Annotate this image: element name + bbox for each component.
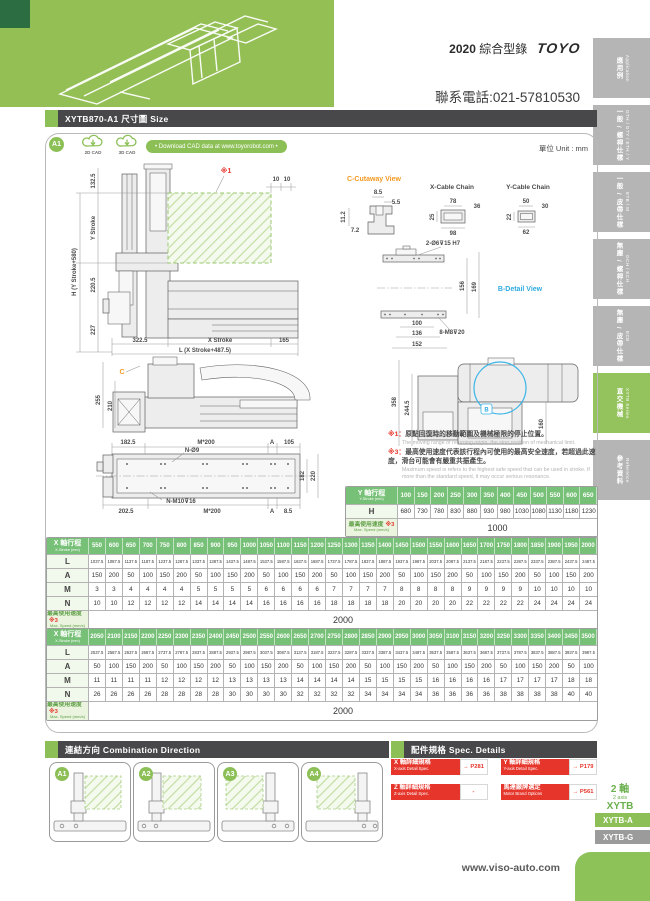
table-cell: 15: [411, 674, 428, 687]
spec-chip-y-axis-detail-spec[interactable]: Y 軸詳細規格Y-axis Detail Spec.→ P179: [501, 759, 598, 775]
table-cell: 3237.5: [326, 646, 343, 659]
table-cell: 10: [563, 583, 580, 596]
table-cell: 2337.5: [529, 555, 546, 568]
corner-accent: [575, 852, 650, 901]
stroke-value-header: 1350: [360, 538, 377, 554]
stroke-value-header: 2100: [106, 629, 123, 645]
stroke-value-header: 2350: [191, 629, 208, 645]
table-cell: 16: [478, 674, 495, 687]
table-cell: 5: [208, 583, 225, 596]
stroke-value-header: 1600: [445, 538, 462, 554]
table-cell: 8: [394, 583, 411, 596]
stroke-value-header: 2200: [140, 629, 157, 645]
stroke-value-header: 3500: [580, 629, 597, 645]
row-label: N: [47, 688, 89, 701]
table-cell: 26: [140, 688, 157, 701]
sidebar-tab-reference[interactable]: 參考資料Reference: [593, 440, 650, 500]
table-cell: 16: [258, 597, 275, 610]
table-cell: 2537.5: [89, 646, 106, 659]
max-speed-value: 2000: [89, 611, 597, 629]
stroke-value-header: 1550: [428, 538, 445, 554]
stroke-value-header: 2150: [123, 629, 140, 645]
table-cell: 3137.5: [292, 646, 309, 659]
stroke-value-header: 650: [580, 487, 597, 504]
stroke-value-header: 800: [174, 538, 191, 554]
table-cell: 36: [445, 688, 462, 701]
table-cell: 5: [191, 583, 208, 596]
table-cell: 50: [191, 569, 208, 582]
stroke-value-header: 1800: [512, 538, 529, 554]
table-cell: 2987.5: [241, 646, 258, 659]
cad-3d-download[interactable]: 3D CAD: [112, 134, 142, 155]
table-cell: 200: [377, 569, 394, 582]
table-cell: 8: [428, 583, 445, 596]
table-cell: 10: [89, 597, 106, 610]
toyo-logo: TOYO: [535, 40, 581, 56]
cloud-download-icon: [114, 134, 140, 150]
stroke-value-header: 1500: [411, 538, 428, 554]
table-cell: 980: [498, 505, 515, 518]
table-cell: 3337.5: [360, 646, 377, 659]
contact-phone: 聯系電話:021-57810530: [435, 86, 580, 106]
table-cell: 20: [428, 597, 445, 610]
table-cell: 14: [191, 597, 208, 610]
table-cell: 3287.5: [343, 646, 360, 659]
series-tab-xytb-g[interactable]: XYTB-G: [595, 830, 650, 844]
table-cell: 200: [241, 569, 258, 582]
table-cell: 16: [275, 597, 292, 610]
stroke-value-header: 2600: [275, 629, 292, 645]
stroke-value-header: 600: [564, 487, 581, 504]
table-cell: 2587.5: [106, 646, 123, 659]
note1-ref: ※1：: [388, 431, 405, 438]
stroke-value-header: 1750: [495, 538, 512, 554]
table-cell: 200: [140, 660, 157, 673]
table-cell: 3887.5: [546, 646, 563, 659]
table-cell: 17: [529, 674, 546, 687]
table-cell: 100: [174, 660, 191, 673]
table-cell: 17: [546, 674, 563, 687]
series-name: XYTB: [595, 801, 645, 812]
table-cell: 150: [258, 660, 275, 673]
stroke-value-header: 3450: [563, 629, 580, 645]
table-cell: 4: [174, 583, 191, 596]
table-cell: 22: [512, 597, 529, 610]
stroke-value-header: 550: [89, 538, 106, 554]
table-cell: 1230: [580, 505, 597, 518]
stroke-value-header: 2250: [157, 629, 174, 645]
table-cell: 4: [140, 583, 157, 596]
stroke-value-header: 500: [531, 487, 548, 504]
table-cell: 3787.5: [512, 646, 529, 659]
table-cell: 1887.5: [377, 555, 394, 568]
table-cell: 1387.5: [208, 555, 225, 568]
chip-label-en: Y-axis Detail Spec.: [504, 767, 567, 771]
combination-badge: A4: [307, 767, 321, 781]
table-cell: 40: [580, 688, 597, 701]
table-cell: 16: [428, 674, 445, 687]
table-cell: 150: [123, 660, 140, 673]
variant-badge: A1: [49, 137, 64, 152]
table-cell: 150: [428, 569, 445, 582]
series-label: 2 軸 2 axis XYTB: [595, 784, 645, 812]
stroke-value-header: 750: [157, 538, 174, 554]
table-cell: 830: [448, 505, 465, 518]
stroke-value-header: 100: [398, 487, 415, 504]
table-cell: 3487.5: [411, 646, 428, 659]
table-cell: 7: [377, 583, 394, 596]
table-cell: 150: [224, 569, 241, 582]
table-cell: 36: [428, 688, 445, 701]
stroke-value-header: 2900: [377, 629, 394, 645]
stroke-header-label: X 軸行程X-Stroke (mm): [47, 629, 89, 645]
table-cell: 150: [563, 569, 580, 582]
table-cell: 2037.5: [428, 555, 445, 568]
stroke-value-header: 950: [224, 538, 241, 554]
table-cell: 2687.5: [140, 646, 157, 659]
stroke-value-header: 1100: [275, 538, 292, 554]
stroke-value-header: 1400: [377, 538, 394, 554]
cad-2d-label: 2D CAD: [78, 150, 108, 155]
table-cell: 9: [478, 583, 495, 596]
chip-page-ref: → P179: [569, 759, 597, 775]
stroke-value-header: 1300: [343, 538, 360, 554]
table-cell: 150: [326, 660, 343, 673]
stroke-value-header: 350: [481, 487, 498, 504]
table-cell: 34: [360, 688, 377, 701]
table-cell: 1287.5: [174, 555, 191, 568]
stroke-value-header: 2450: [224, 629, 241, 645]
table-cell: 2887.5: [208, 646, 225, 659]
table-cell: 12: [157, 597, 174, 610]
table-cell: 28: [174, 688, 191, 701]
stroke-value-header: 1850: [529, 538, 546, 554]
sidebar-tab-label-en: ECB: [625, 331, 630, 342]
stroke-value-header: 3350: [529, 629, 546, 645]
table-cell: 7: [343, 583, 360, 596]
stroke-value-header: 700: [140, 538, 157, 554]
table-cell: 50: [462, 569, 479, 582]
table-cell: 2187.5: [478, 555, 495, 568]
table-cell: 13: [241, 674, 258, 687]
table-cell: 1237.5: [157, 555, 174, 568]
title-green-square: [391, 741, 404, 758]
table-cell: 12: [174, 674, 191, 687]
table-cell: 50: [360, 660, 377, 673]
sidebar-tab-etb-m[interactable]: 一般 / 皮帶仕樣ETB / M: [593, 172, 650, 232]
table-cell: 36: [462, 688, 479, 701]
catalog-year: 2020: [449, 42, 476, 56]
table-cell: 24: [529, 597, 546, 610]
table-cell: 1587.5: [275, 555, 292, 568]
table-cell: 34: [377, 688, 394, 701]
table-cell: 3437.5: [394, 646, 411, 659]
sidebar-tab-gth-gty-eth-y[interactable]: 一般 / 螺桿仕樣GTH / GTY / ETH / Y: [593, 105, 650, 165]
max-speed-label: 最高使用速度※3Max. Speed (mm/s): [47, 702, 89, 720]
table-cell: 3087.5: [275, 646, 292, 659]
table-cell: 10: [580, 583, 597, 596]
stroke-value-header: 2500: [241, 629, 258, 645]
table-cell: 50: [394, 569, 411, 582]
table-cell: 28: [191, 688, 208, 701]
max-speed-value: 1000: [398, 519, 597, 536]
table-cell: 14: [208, 597, 225, 610]
stroke-value-header: 300: [464, 487, 481, 504]
table-cell: 1937.5: [394, 555, 411, 568]
table-cell: 6: [258, 583, 275, 596]
table-cell: 2637.5: [123, 646, 140, 659]
spec-chip-motor-brand-options[interactable]: 馬達廠牌選定Motor Brand Options→ P561: [501, 784, 598, 800]
table-cell: 3987.5: [580, 646, 597, 659]
sidebar-tab-label-en: Application: [625, 55, 630, 82]
stroke-value-header: 550: [547, 487, 564, 504]
sidebar-tab-label-en: GTH / GTY / ETH / Y: [625, 110, 630, 160]
table-cell: 100: [241, 660, 258, 673]
table-cell: 7: [326, 583, 343, 596]
table-cell: 3537.5: [428, 646, 445, 659]
table-cell: 50: [563, 660, 580, 673]
row-label: L: [47, 646, 89, 659]
table-cell: 2387.5: [546, 555, 563, 568]
table-cell: 100: [377, 660, 394, 673]
table-cell: 32: [343, 688, 360, 701]
stroke-value-header: 3100: [445, 629, 462, 645]
gantry-robot-sketch: [0, 0, 334, 107]
note3-text-en: Maximum speed is refers to the highest s…: [402, 467, 596, 480]
table-cell: 50: [89, 660, 106, 673]
sidebar-tab-label-en: XYTB Series: [625, 388, 630, 419]
table-cell: 150: [529, 660, 546, 673]
table-cell: 50: [224, 660, 241, 673]
table-cell: 26: [106, 688, 123, 701]
stroke-value-header: 1050: [258, 538, 275, 554]
row-label: L: [47, 555, 89, 568]
stroke-value-header: 3150: [462, 629, 479, 645]
table-cell: 13: [224, 674, 241, 687]
table-cell: 1487.5: [241, 555, 258, 568]
table-cell: 680: [398, 505, 415, 518]
stroke-value-header: 150: [415, 487, 432, 504]
table-cell: 30: [224, 688, 241, 701]
combination-title-en: Combination Direction: [103, 745, 200, 755]
stroke-value-header: 1900: [546, 538, 563, 554]
table-cell: 18: [377, 597, 394, 610]
table-cell: 16: [292, 597, 309, 610]
table-cell: 1987.5: [411, 555, 428, 568]
section-tab-sidebar: 應用例Application一般 / 螺桿仕樣GTH / GTY / ETH /…: [593, 38, 650, 500]
table-cell: 26: [89, 688, 106, 701]
table-cell: 14: [224, 597, 241, 610]
max-speed-label: 最高使用速度※3Max. Speed (mm/s): [346, 519, 398, 536]
table-cell: 150: [89, 569, 106, 582]
table-cell: 10: [546, 583, 563, 596]
table-cell: 7: [360, 583, 377, 596]
series-tab-xytb-a[interactable]: XYTB-A: [595, 813, 650, 827]
sidebar-tab-label-zh: 一般 / 皮帶仕樣: [613, 175, 623, 228]
table-cell: 36: [478, 688, 495, 701]
table-cell: 150: [462, 660, 479, 673]
table-cell: 4: [123, 583, 140, 596]
download-cad-link[interactable]: • Download CAD data at www.toyorobot.com…: [146, 140, 287, 153]
table-cell: 32: [326, 688, 343, 701]
table-cell: 200: [411, 660, 428, 673]
table-cell: 34: [394, 688, 411, 701]
table-cell: 32: [292, 688, 309, 701]
table-cell: 150: [292, 569, 309, 582]
combination-title-zh: 連結方向: [65, 745, 100, 755]
combination-card-a3: A3: [217, 762, 299, 842]
cad-3d-label: 3D CAD: [112, 150, 142, 155]
table-cell: 200: [478, 660, 495, 673]
table-cell: 1537.5: [258, 555, 275, 568]
max-speed-label: 最高使用速度※3Max. Speed (mm/s): [47, 611, 89, 629]
table-cell: 150: [191, 660, 208, 673]
spec-chip-x-axis-detail-spec[interactable]: X 軸詳細規格X-axis Detail Spec.→ P281: [391, 759, 488, 775]
table-cell: 200: [512, 569, 529, 582]
table-cell: 2837.5: [191, 646, 208, 659]
table-cell: 5: [224, 583, 241, 596]
table-cell: 12: [191, 674, 208, 687]
spec-title-zh: 配件規格: [411, 745, 446, 755]
stroke-value-header: 600: [106, 538, 123, 554]
combination-card-a4: A4: [301, 762, 383, 842]
table-cell: 32: [309, 688, 326, 701]
table-cell: 2487.5: [580, 555, 597, 568]
table-cell: 20: [411, 597, 428, 610]
stroke-value-header: 1950: [563, 538, 580, 554]
stroke-value-header: 850: [191, 538, 208, 554]
stroke-value-header: 900: [208, 538, 225, 554]
stroke-value-header: 3200: [478, 629, 495, 645]
sidebar-tab-xytb-series[interactable]: 直交機械XYTB Series: [593, 373, 650, 433]
table-cell: 200: [546, 660, 563, 673]
table-cell: 14: [309, 674, 326, 687]
table-cell: 9: [495, 583, 512, 596]
table-cell: 1837.5: [360, 555, 377, 568]
table-cell: 930: [481, 505, 498, 518]
stroke-value-header: 3050: [428, 629, 445, 645]
table-cell: 6: [275, 583, 292, 596]
stroke-value-header: 1150: [292, 538, 309, 554]
chip-page-ref: -: [460, 784, 488, 800]
stroke-value-header: 1450: [394, 538, 411, 554]
sidebar-tab-label-zh: 無塵 / 螺桿仕樣: [613, 242, 623, 295]
row-label: A: [47, 660, 89, 673]
table-cell: 100: [580, 660, 597, 673]
stroke-value-header: 1700: [478, 538, 495, 554]
sidebar-tab-label-zh: 無塵 / 皮帶仕樣: [613, 309, 623, 362]
table-cell: 200: [580, 569, 597, 582]
sidebar-tab-application[interactable]: 應用例Application: [593, 38, 650, 98]
table-cell: 30: [275, 688, 292, 701]
table-cell: 1637.5: [292, 555, 309, 568]
table-cell: 2737.5: [157, 646, 174, 659]
table-cell: 200: [106, 569, 123, 582]
cad-2d-download[interactable]: 2D CAD: [78, 134, 108, 155]
table-cell: 50: [157, 660, 174, 673]
table-cell: 5: [241, 583, 258, 596]
table-cell: 28: [157, 688, 174, 701]
table-cell: 6: [292, 583, 309, 596]
table-cell: 16: [445, 674, 462, 687]
table-cell: 11: [106, 674, 123, 687]
stroke-value-header: 2700: [309, 629, 326, 645]
table-cell: 18: [580, 674, 597, 687]
stroke-value-header: 1250: [326, 538, 343, 554]
stroke-value-header: 1200: [309, 538, 326, 554]
table-cell: 17: [495, 674, 512, 687]
sidebar-tab-label-en: Reference: [625, 458, 630, 483]
table-cell: 9: [512, 583, 529, 596]
table-cell: 14: [241, 597, 258, 610]
stroke-value-header: 2950: [394, 629, 411, 645]
table-cell: 3837.5: [529, 646, 546, 659]
row-label: M: [47, 583, 89, 596]
x-stroke-table-1: X 軸行程X-Stroke (mm)5506006507007508008509…: [46, 537, 598, 630]
table-cell: 1687.5: [309, 555, 326, 568]
spec-chip-z-axis-detail-spec[interactable]: Z 軸詳細規格Z-axis Detail Spec.-: [391, 784, 488, 800]
website-url: www.viso-auto.com: [360, 862, 560, 874]
table-cell: 12: [208, 674, 225, 687]
table-cell: 15: [377, 674, 394, 687]
cloud-download-icon: [80, 134, 106, 150]
sidebar-tab-label-zh: 應用例: [613, 57, 623, 80]
table-cell: 28: [208, 688, 225, 701]
stroke-value-header: 650: [123, 538, 140, 554]
sidebar-tab-ecb[interactable]: 無塵 / 皮帶仕樣ECB: [593, 306, 650, 366]
table-cell: 38: [546, 688, 563, 701]
table-cell: 50: [123, 569, 140, 582]
table-cell: 40: [563, 688, 580, 701]
table-cell: 150: [495, 569, 512, 582]
table-cell: 50: [529, 569, 546, 582]
table-cell: 1737.5: [326, 555, 343, 568]
table-cell: 780: [431, 505, 448, 518]
table-cell: 17: [512, 674, 529, 687]
table-cell: 100: [445, 660, 462, 673]
spec-chip-grid: X 軸詳細規格X-axis Detail Spec.→ P281Y 軸詳細規格Y…: [391, 759, 597, 800]
combination-badge: A3: [223, 767, 237, 781]
sidebar-tab-gch-ech[interactable]: 無塵 / 螺桿仕樣GCH / ECH: [593, 239, 650, 299]
table-cell: 2287.5: [512, 555, 529, 568]
stroke-value-header: 3400: [546, 629, 563, 645]
sidebar-tab-label-zh: 參考資料: [613, 455, 623, 485]
stroke-header-label: Y 軸行程Y-Stroke (mm): [346, 487, 398, 504]
table-cell: 24: [563, 597, 580, 610]
table-cell: 34: [411, 688, 428, 701]
table-cell: 18: [343, 597, 360, 610]
table-cell: 11: [140, 674, 157, 687]
stroke-value-header: 450: [514, 487, 531, 504]
row-label: N: [47, 597, 89, 610]
table-cell: 22: [478, 597, 495, 610]
photo-corner-block: [0, 0, 30, 28]
table-cell: 20: [445, 597, 462, 610]
table-cell: 3637.5: [462, 646, 479, 659]
table-cell: 2437.5: [563, 555, 580, 568]
axis-count-zh: 2 軸: [595, 784, 645, 795]
table-cell: 1787.5: [343, 555, 360, 568]
stroke-value-header: 1000: [241, 538, 258, 554]
table-cell: 150: [157, 569, 174, 582]
note1-text: 原點回復時的移動範圍及機械極限的停止位置。: [405, 431, 548, 438]
table-cell: 3737.5: [495, 646, 512, 659]
table-cell: 16: [309, 597, 326, 610]
table-cell: 18: [563, 674, 580, 687]
table-cell: 100: [512, 660, 529, 673]
sidebar-tab-label-zh: 一般 / 螺桿仕樣: [613, 108, 623, 161]
chip-label-en: Z-axis Detail Spec.: [394, 792, 457, 796]
